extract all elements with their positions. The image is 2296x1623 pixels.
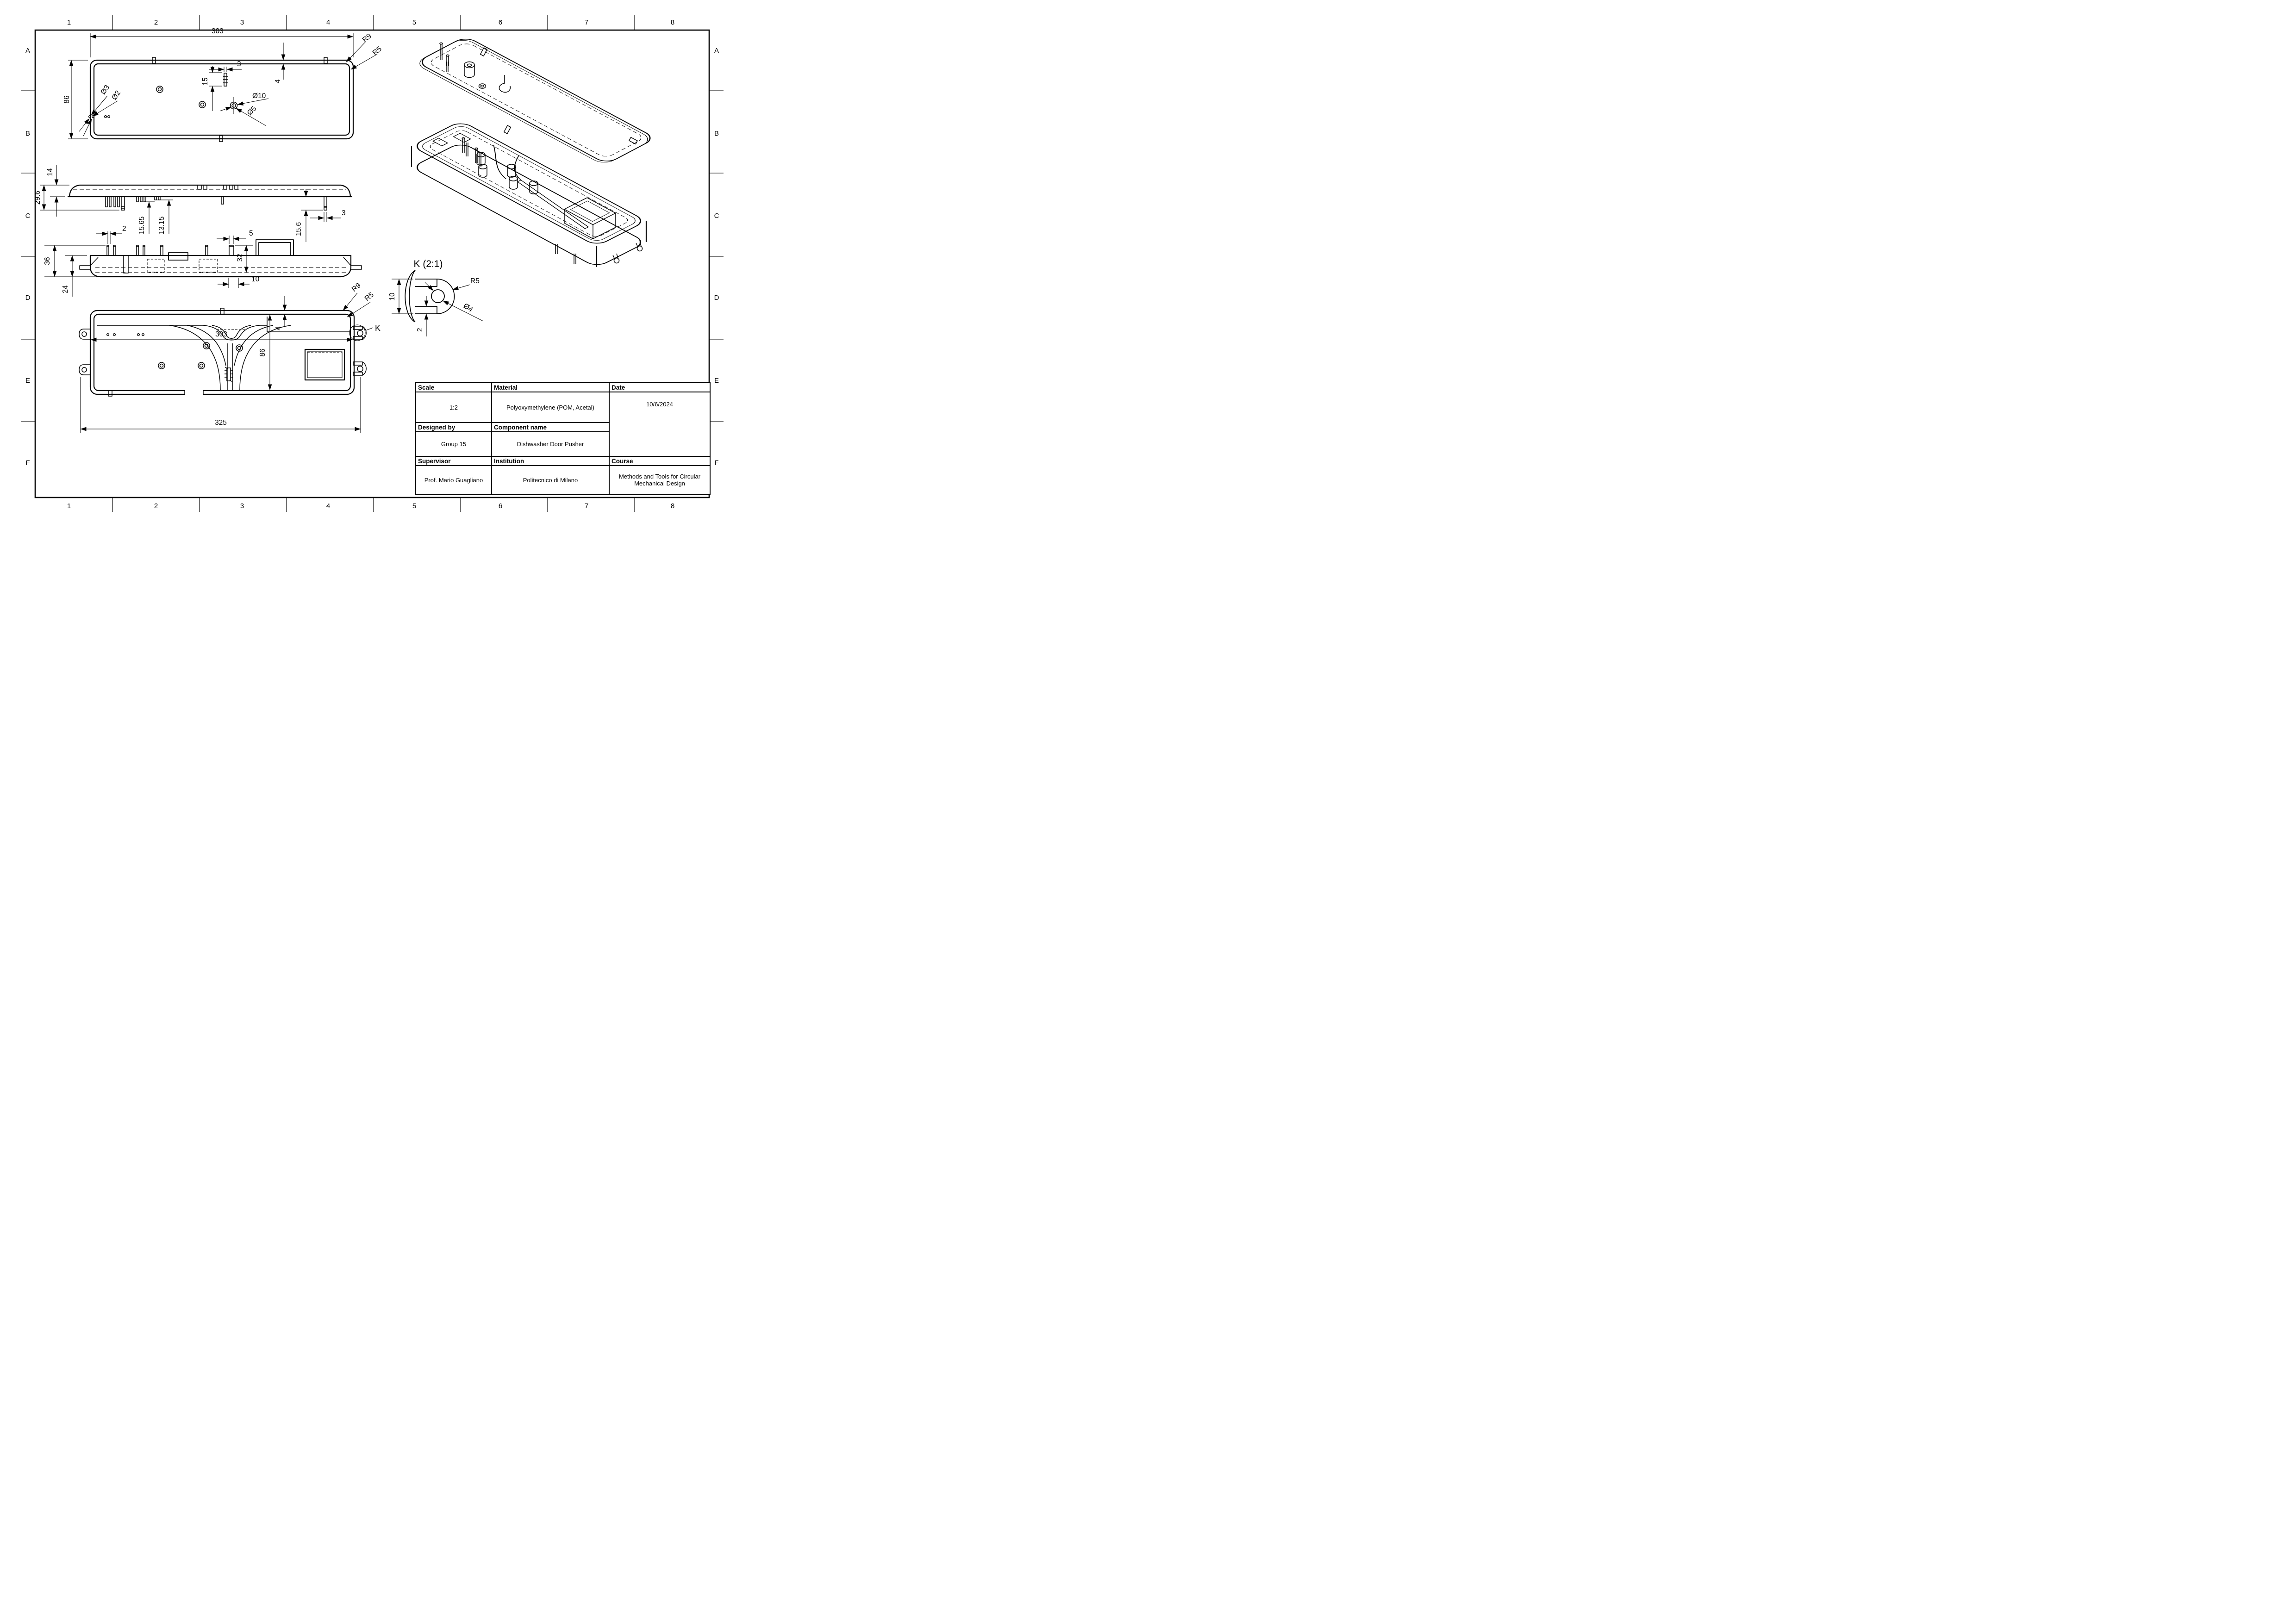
tray-bosses — [477, 152, 538, 194]
dim-text: 3 — [237, 60, 241, 68]
grid-col-label: 1 — [67, 502, 71, 510]
clip-head-arc — [437, 279, 455, 314]
grid-col-label: 1 — [67, 19, 71, 26]
grid-row-label: A — [25, 47, 30, 55]
lid-hook — [499, 75, 510, 92]
top-pins — [106, 245, 234, 255]
dim-4-top: 4 — [274, 43, 283, 83]
r5-leader-detail: R5 — [453, 277, 480, 290]
lid-edge-clips — [480, 48, 637, 144]
internal-post — [124, 255, 128, 273]
dim-text: R9 — [361, 32, 373, 44]
grid-row-label: C — [25, 212, 31, 220]
grid-col-label: 8 — [671, 502, 674, 510]
dia-leaders-top: Ø10 Ø5 — [220, 92, 268, 126]
dim-text: 10 — [251, 275, 260, 283]
title-block: Scale Material Date 1:2 Polyoxymethylene… — [415, 382, 710, 495]
dim-15-top: 15 — [201, 66, 222, 111]
dim-text: 2 — [122, 225, 126, 233]
dim-14: 14 — [40, 165, 69, 217]
dia4-leader-detail: Ø4 — [425, 282, 483, 321]
dim-text: 5 — [249, 230, 253, 237]
grid-col-label: 2 — [154, 502, 158, 510]
supervisor-label: Supervisor — [416, 456, 492, 466]
grid-col-label: 5 — [412, 502, 416, 510]
dim-text: 15.6 — [295, 222, 303, 236]
clip-bar-top — [415, 279, 437, 286]
dim-13-15: 13.15 — [156, 200, 173, 234]
front-view: K — [79, 281, 381, 433]
grid-col-label: 6 — [499, 502, 502, 510]
grid-col-label: 7 — [585, 19, 588, 26]
grid-row-label: B — [714, 130, 719, 137]
institution-label: Institution — [492, 456, 609, 466]
grid-col-label: 5 — [412, 19, 416, 26]
dim-text: 2 — [416, 328, 424, 332]
grid-row-label: C — [714, 212, 719, 220]
dim-3-top: 3 — [209, 60, 242, 72]
side-view-upper: 14 29.6 15.65 13.15 3 — [34, 165, 352, 242]
grid-row-label: D — [25, 294, 31, 302]
dim-text: Ø4 — [462, 302, 474, 314]
window-rect — [168, 253, 188, 260]
dim-text: 24 — [62, 285, 69, 293]
dim-text: 14 — [46, 168, 54, 176]
grid-row-label: A — [714, 47, 719, 55]
pin-hole-target — [231, 97, 237, 114]
side-view-lower: 2 5 32 36 24 — [44, 225, 362, 297]
dim-text: 10 — [388, 292, 396, 301]
hidden-features — [147, 259, 218, 272]
grid-row-label: B — [25, 130, 30, 137]
dim-5-lower: 5 — [217, 230, 253, 244]
top-view: 303 86 R9 R5 Ø3 Ø2 — [63, 27, 383, 142]
material-value: Polyoxymethylene (POM, Acetal) — [492, 392, 609, 423]
dim-text: R9 — [350, 281, 362, 293]
detail-title: K (2:1) — [413, 259, 443, 269]
clip-bar-bottom — [415, 306, 437, 314]
crescent-outer — [405, 270, 415, 322]
ribbed-pin — [223, 73, 228, 86]
crescent-inner — [409, 270, 415, 322]
designed-by-label: Designed by — [416, 423, 492, 432]
front-holes — [107, 334, 144, 336]
institution-value: Politecnico di Milano — [492, 466, 609, 494]
dim-24: 24 — [62, 255, 87, 297]
grid-col-label: 3 — [240, 502, 244, 510]
boss-circles — [156, 86, 206, 108]
hanging-pins — [106, 197, 327, 210]
dim-text: 32 — [236, 254, 244, 261]
detail-view-k: K (2:1) 10 2 R5 — [388, 259, 483, 336]
edge-clips — [152, 57, 327, 142]
ribbed-shaft — [225, 367, 233, 382]
dim-text: 29.6 — [34, 191, 42, 205]
course-value: Methods and Tools for Circular Mechanica… — [609, 466, 710, 494]
lid-tube-boss — [464, 62, 474, 78]
grid-row-label: E — [25, 377, 30, 385]
dim-303-top: 303 — [90, 27, 353, 57]
grid-col-label: 3 — [240, 19, 244, 26]
dim-2-detail: 2 — [416, 296, 426, 336]
bottom-notch — [185, 390, 203, 395]
grid-col-label: 4 — [326, 502, 330, 510]
component-name-value: Dishwasher Door Pusher — [492, 432, 609, 456]
dim-3-side: 3 — [310, 209, 346, 222]
dim-29-6: 29.6 — [34, 185, 119, 210]
tray-depth-edges — [412, 146, 646, 267]
iso-view-tray — [412, 121, 646, 267]
grid-row-label: D — [714, 294, 719, 302]
dim-15-65: 15.65 — [138, 202, 155, 234]
dim-36: 36 — [44, 245, 106, 277]
scale-value: 1:2 — [416, 392, 492, 423]
scale-label: Scale — [416, 383, 492, 392]
dim-text: R5 — [470, 277, 480, 285]
face-blocks — [198, 185, 238, 189]
dim-text: 86 — [259, 348, 267, 356]
dim-32: 32 — [235, 245, 253, 273]
grid-col-label: 7 — [585, 502, 588, 510]
clip-hole — [431, 290, 444, 303]
course-value-line1: Methods and Tools for Circular — [611, 473, 708, 480]
box-opening — [305, 349, 344, 380]
title-block-table: Scale Material Date 1:2 Polyoxymethylene… — [415, 382, 711, 495]
dim-text: 303 — [212, 27, 224, 35]
dim-text: Ø10 — [252, 92, 266, 100]
dim-text: 36 — [44, 257, 51, 265]
course-label: Course — [609, 456, 710, 466]
date-label: Date — [609, 383, 710, 392]
material-label: Material — [492, 383, 609, 392]
grid-col-label: 8 — [671, 19, 674, 26]
small-holes — [89, 116, 110, 118]
dim-86-top: 86 — [63, 60, 88, 139]
dim-text: 325 — [215, 419, 227, 427]
left-ears — [79, 329, 90, 375]
component-name-label: Component name — [492, 423, 609, 432]
dim-text: R5 — [371, 45, 383, 57]
dim-text: Ø2 — [110, 89, 122, 102]
supervisor-value: Prof. Mario Guagliano — [416, 466, 492, 494]
designed-by-value: Group 15 — [416, 432, 492, 456]
dim-text: 3 — [342, 209, 346, 217]
dim-4-front: 4 — [275, 296, 285, 330]
grid-col-label: 6 — [499, 19, 502, 26]
dim-text: 4 — [275, 326, 282, 330]
dim-2-lower: 2 — [96, 225, 126, 244]
dim-text: 13.15 — [158, 217, 166, 235]
edge-clip — [220, 308, 224, 314]
dim-text: 4 — [274, 79, 282, 83]
dim-86-front: 86 — [259, 315, 270, 390]
dim-text: 15 — [201, 77, 209, 85]
grid-col-label: 4 — [326, 19, 330, 26]
hole-leaders-top: Ø3 Ø2 — [79, 84, 122, 136]
raised-box — [256, 240, 293, 255]
dim-text: 86 — [63, 95, 71, 103]
grid-row-label: F — [25, 459, 30, 467]
grid-row-label: E — [714, 377, 719, 385]
grid-col-label: 2 — [154, 19, 158, 26]
radius-leaders-front: R9 R5 — [343, 281, 375, 317]
dim-text: R5 — [363, 291, 375, 303]
drawing-sheet: 1 2 3 4 5 6 7 8 1 2 3 4 5 6 7 8 A B C D … — [0, 0, 726, 513]
lid-ring — [479, 84, 486, 88]
date-value: 10/6/2024 — [609, 392, 710, 456]
course-value-line2: Mechanical Design — [611, 480, 708, 487]
dim-text: 303 — [215, 330, 227, 338]
dim-text: 15.65 — [138, 217, 146, 235]
iso-view-lid — [414, 36, 656, 165]
front-bosses — [158, 342, 243, 369]
grid-row-label: F — [714, 459, 718, 467]
right-clips — [353, 326, 366, 375]
edge-clip — [108, 391, 112, 396]
radius-leaders-top: R9 R5 — [346, 32, 383, 69]
dim-text: Ø3 — [99, 84, 111, 96]
detail-mark-label: K — [375, 323, 381, 333]
